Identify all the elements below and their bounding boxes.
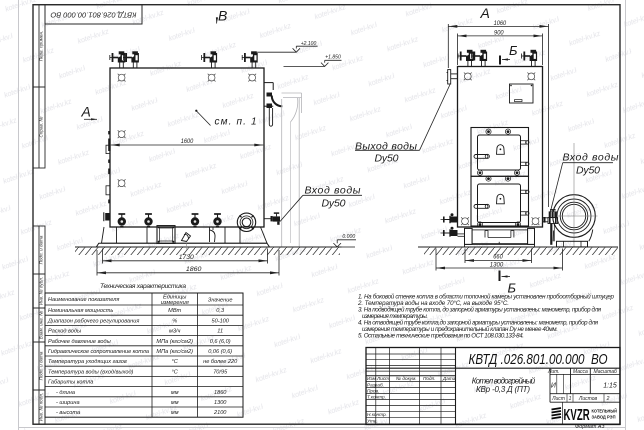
svg-text:Вход воды: Вход воды — [563, 151, 619, 163]
svg-text:м3/ч: м3/ч — [169, 329, 180, 335]
svg-text:1:15: 1:15 — [603, 383, 617, 390]
svg-text:Dy50: Dy50 — [576, 164, 600, 176]
svg-text:мм: мм — [171, 400, 179, 406]
svg-text:1860: 1860 — [186, 266, 202, 273]
svg-text:Подп. и дата: Подп. и дата — [39, 235, 44, 264]
svg-text:МПа (кгс/см2): МПа (кгс/см2) — [156, 349, 193, 355]
svg-text:1300: 1300 — [490, 261, 504, 268]
svg-text:см. п. 1: см. п. 1 — [215, 116, 257, 127]
svg-text:5. Остальные технические треб: 5. Остальные технические требования по О… — [358, 333, 524, 340]
svg-text:0.000: 0.000 — [342, 234, 355, 240]
svg-text:0,06 (0,6): 0,06 (0,6) — [208, 349, 232, 355]
svg-text:1860: 1860 — [214, 390, 227, 396]
svg-text:А: А — [81, 104, 91, 120]
svg-text:0,6 (6,0): 0,6 (6,0) — [210, 339, 231, 345]
svg-text:1300: 1300 — [214, 400, 227, 406]
svg-text:+2.100: +2.100 — [301, 41, 317, 47]
svg-text:Б: Б — [509, 43, 518, 58]
svg-text:Диапазон рабочего регулировани: Диапазон рабочего регулирования — [47, 318, 139, 324]
svg-text:1730: 1730 — [179, 254, 194, 261]
svg-text:- длина: - длина — [56, 390, 75, 396]
svg-text:°С: °С — [172, 359, 179, 365]
svg-text:Утв.: Утв. — [367, 418, 378, 423]
svg-text:Значение: Значение — [208, 298, 233, 304]
svg-text:Dy50: Dy50 — [322, 197, 346, 209]
svg-text:2100: 2100 — [213, 410, 227, 416]
svg-text:Техническая характеристика: Техническая характеристика — [100, 283, 186, 290]
svg-text:измерения: измерения — [161, 300, 189, 306]
svg-text:Вход воды: Вход воды — [305, 184, 361, 196]
svg-text:мм: мм — [171, 410, 179, 416]
svg-text:Формат А3: Формат А3 — [575, 424, 605, 430]
svg-text:Dy50: Dy50 — [375, 152, 399, 164]
svg-text:%: % — [172, 318, 177, 324]
svg-text:Взам. инв. №: Взам. инв. № — [39, 311, 44, 339]
svg-text:Лист: Лист — [376, 376, 389, 381]
svg-text:Перв. примен.: Перв. примен. — [39, 31, 44, 62]
svg-text:Т.контр.: Т.контр. — [367, 394, 386, 399]
svg-text:900: 900 — [494, 29, 504, 36]
svg-text:Номинальная мощность: Номинальная мощность — [48, 308, 113, 314]
svg-text:Подп. и дата: Подп. и дата — [39, 351, 44, 380]
svg-text:Подп.: Подп. — [423, 376, 435, 381]
svg-text:2: 2 — [606, 396, 610, 402]
svg-text:0,3: 0,3 — [216, 308, 225, 314]
svg-text:+1.850: +1.850 — [325, 55, 341, 61]
svg-text:Лист: Лист — [551, 396, 565, 402]
svg-text:Листов: Листов — [578, 396, 598, 402]
svg-text:Инв. № дубл.: Инв. № дубл. — [39, 277, 44, 305]
svg-text:°С: °С — [172, 369, 179, 375]
svg-text:- высота: - высота — [56, 410, 80, 416]
svg-text:ЗАВОД РЭП: ЗАВОД РЭП — [592, 415, 616, 420]
svg-text:Температура уходящих газов: Температура уходящих газов — [48, 359, 127, 365]
svg-text:Габариты котла: Габариты котла — [48, 380, 93, 386]
svg-text:Гидравлическое сопротивление к: Гидравлическое сопротивление котла — [48, 349, 149, 355]
svg-text:Н.контр.: Н.контр. — [367, 412, 387, 417]
svg-text:Лит.: Лит. — [547, 369, 560, 375]
svg-text:№ докум.: № докум. — [396, 376, 417, 381]
svg-text:КВТД .026.801.00.000 ВО: КВТД .026.801.00.000 ВО — [469, 351, 608, 368]
svg-text:Масса: Масса — [573, 369, 588, 375]
svg-text:70/95: 70/95 — [213, 369, 228, 375]
svg-text:KVZR: KVZR — [564, 405, 590, 423]
svg-text:Наименование показателя: Наименование показателя — [48, 297, 119, 303]
svg-text:МПа (кгс/см2): МПа (кгс/см2) — [156, 339, 193, 345]
svg-text:11: 11 — [217, 329, 223, 335]
svg-text:Справ. №: Справ. № — [39, 117, 44, 138]
svg-text:1: 1 — [569, 396, 572, 402]
svg-text:Расход воды: Расход воды — [48, 329, 81, 335]
svg-text:А: А — [480, 5, 490, 21]
svg-text:1600: 1600 — [181, 138, 194, 145]
svg-text:- ширина: - ширина — [56, 400, 80, 406]
svg-text:660: 660 — [493, 254, 503, 261]
svg-text:50-100: 50-100 — [211, 318, 229, 324]
svg-text:мм: мм — [171, 390, 179, 396]
svg-text:Пров.: Пров. — [367, 388, 379, 393]
svg-text:В: В — [218, 8, 227, 24]
svg-text:МВт: МВт — [168, 308, 181, 314]
svg-text:Температура воды (вход/выход): Температура воды (вход/выход) — [48, 369, 134, 375]
svg-text:Рабочее давление воды: Рабочее давление воды — [48, 339, 111, 345]
svg-text:Изм: Изм — [367, 376, 376, 381]
svg-text:КВТД.026.801.00.000 ВО: КВТД.026.801.00.000 ВО — [50, 11, 136, 20]
svg-text:Разраб.: Разраб. — [367, 382, 384, 387]
svg-text:Масштаб: Масштаб — [594, 369, 618, 375]
svg-text:не более 220: не более 220 — [203, 359, 238, 365]
svg-text:Инв. № подл.: Инв. № подл. — [39, 393, 44, 422]
svg-text:КВр -0,3 Д (ПТ): КВр -0,3 Д (ПТ) — [476, 385, 530, 394]
svg-text:Дата: Дата — [442, 376, 456, 381]
svg-text:1060: 1060 — [494, 20, 507, 27]
svg-text:КОТЕЛЬНЫЙ: КОТЕЛЬНЫЙ — [592, 407, 618, 414]
